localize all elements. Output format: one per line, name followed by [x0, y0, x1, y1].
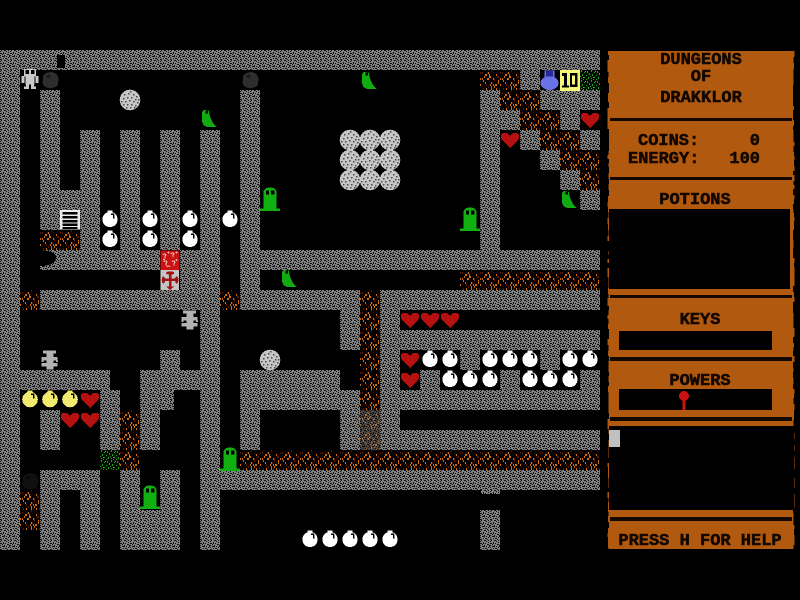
svg-text:ENERGY:: ENERGY:: [628, 150, 699, 169]
svg-text:OF: OF: [691, 68, 711, 87]
svg-text:0: 0: [750, 132, 760, 151]
svg-text:100: 100: [729, 150, 760, 169]
svg-text:POWERS: POWERS: [669, 372, 730, 391]
svg-text:POTIONS: POTIONS: [659, 191, 730, 210]
svg-text:KEYS: KEYS: [680, 311, 721, 330]
svg-text:PRESS H FOR HELP: PRESS H FOR HELP: [618, 532, 781, 551]
svg-text:DRAKKLOR: DRAKKLOR: [660, 89, 742, 108]
svg-text:COINS:: COINS:: [638, 132, 699, 151]
